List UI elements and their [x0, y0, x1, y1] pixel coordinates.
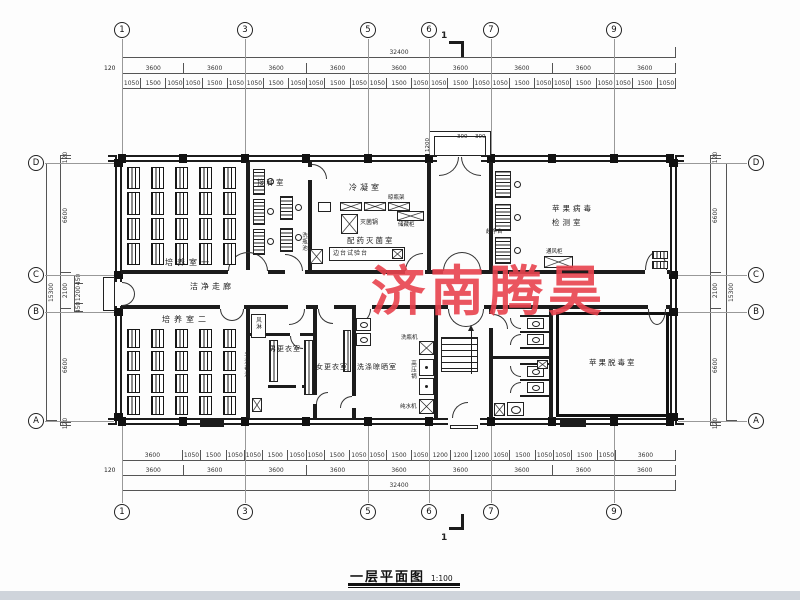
shelf-rack-cell	[175, 218, 188, 240]
wc	[527, 382, 544, 393]
drawing-element: 3600	[514, 468, 529, 474]
dim-row-top-detail: 1050150010501050150010501050150010501050…	[122, 78, 676, 89]
dim-label: 2100	[710, 273, 721, 310]
grid-line	[45, 312, 114, 313]
shelf-rack-cell	[151, 374, 164, 393]
drawing-element	[241, 417, 249, 426]
grid-line	[45, 163, 114, 164]
drawing-element: 1050	[616, 81, 631, 87]
drawing-element: 3600	[391, 66, 406, 72]
equip-label-water-purifier: 纯水机	[400, 404, 417, 410]
dim-label: 450	[74, 304, 83, 312]
grid-line	[614, 39, 615, 154]
drawing-element	[514, 181, 521, 188]
dim-label: 3600	[123, 450, 183, 461]
hand-sanitize-sink	[252, 398, 262, 412]
shelf-rack-cell	[127, 218, 140, 240]
drawing-element	[121, 305, 220, 309]
mop-sink	[537, 360, 548, 369]
dim-label: 120	[710, 423, 721, 426]
wall-right	[670, 155, 677, 425]
dim-label: 1200	[472, 450, 493, 461]
shelf-rack-cell	[223, 351, 236, 370]
door-arc	[285, 254, 303, 271]
grid-bubble-bottom-1: 1	[114, 504, 130, 520]
grid-line	[429, 39, 430, 154]
drawing-element	[520, 395, 549, 397]
drawing-element	[520, 379, 549, 381]
dim-label: 3600	[369, 63, 430, 74]
drawing-element	[360, 322, 368, 328]
drawing-element: 1050	[184, 453, 199, 459]
wc	[527, 334, 544, 345]
drawing-element: 3600	[391, 468, 406, 474]
dim-label: 1500	[203, 78, 228, 89]
drawing-element: 1050	[185, 81, 200, 87]
drawing-element: 1050	[493, 81, 508, 87]
dim-label: 1050	[183, 450, 201, 461]
sink	[356, 318, 371, 331]
dim-label: 3600	[553, 465, 614, 476]
grid-line	[491, 426, 492, 503]
door-arc	[318, 309, 333, 324]
drawing-element: 1200	[453, 453, 468, 459]
dim-label: 1050	[658, 78, 676, 89]
wash-basin	[507, 402, 524, 416]
grid-bubble-left-B: B	[28, 304, 44, 320]
room-label-culture2: 培养室二	[162, 316, 210, 325]
dim-label: 120	[60, 423, 71, 426]
drawing-element: 1050	[413, 453, 428, 459]
drawing-element: 3600	[576, 468, 591, 474]
grid-line	[245, 426, 246, 503]
drawing-element	[364, 417, 372, 426]
dim-label: 3600	[430, 465, 491, 476]
bench	[364, 202, 386, 211]
bench	[340, 202, 362, 211]
drawing-element	[532, 369, 540, 375]
drawing-element: 3600	[453, 66, 468, 72]
shelf-rack	[199, 329, 212, 415]
drawing-element	[267, 238, 274, 245]
shelf-rack-cell	[151, 167, 164, 189]
drawing-element	[514, 214, 521, 221]
drawing-element: 1500	[268, 81, 283, 87]
drawing-element: 1050	[431, 81, 446, 87]
drawing-element: 1050	[308, 81, 323, 87]
equip-label-autoclave: 高压锅	[410, 360, 416, 380]
drawing-element: 1050	[352, 81, 367, 87]
grid-line	[122, 426, 123, 503]
drawing-element: 1050	[351, 453, 366, 459]
drawing-element: 1050	[124, 81, 139, 87]
dim-label: 3600	[616, 450, 676, 461]
shelf-rack-cell	[223, 192, 236, 214]
grid-bubble-top-9: 9	[606, 22, 622, 38]
dim-label: 3600	[430, 63, 491, 74]
dim-label: 3600	[307, 465, 368, 476]
shelf-rack-cell	[199, 192, 212, 214]
equip-label-storage-cabinet: 储藏柜	[398, 222, 415, 228]
drawing-element	[114, 308, 123, 316]
dim-label: 32400	[123, 47, 676, 58]
door-arc	[510, 366, 521, 377]
shelf-rack-cell	[127, 329, 140, 348]
entrance-dim: 300	[457, 134, 468, 140]
grid-line	[491, 39, 492, 154]
dim-label: 1050	[245, 450, 263, 461]
bench	[280, 228, 293, 252]
drawing-scale: 1:100	[431, 574, 453, 583]
drawing-element	[302, 417, 310, 426]
dim-label: 1500	[325, 450, 351, 461]
dim-label: 1200	[430, 450, 451, 461]
drawing-element	[532, 385, 540, 391]
dim-label: 1050	[228, 78, 246, 89]
door-arc	[220, 309, 232, 321]
dim-label: 1500	[510, 450, 536, 461]
drawing-element: 3600	[207, 468, 222, 474]
shelf-rack-cell	[175, 167, 188, 189]
dim-label: 1050	[553, 78, 571, 89]
drawing-element: 3600	[207, 66, 222, 72]
dim-label: 15300	[726, 164, 737, 421]
dim-label: 1050	[412, 450, 430, 461]
drawing-element: 1050	[369, 453, 384, 459]
dim-col-left-sub: 4501200450	[74, 275, 83, 312]
drawing-element: 1500	[329, 453, 344, 459]
drawing-element: 1500	[330, 81, 345, 87]
drawing-element: 3600	[514, 66, 529, 72]
room-label-condensation: 冷凝室	[349, 184, 382, 193]
drawing-element	[179, 154, 187, 163]
drawing-element: 1050	[167, 81, 182, 87]
drawing-element	[511, 406, 521, 414]
drawing-element: 2100	[63, 283, 70, 298]
equip-label-hand-sanitize: 手消毒池	[243, 352, 249, 378]
dim-label: 3600	[307, 63, 368, 74]
grid-bubble-bottom-6: 6	[421, 504, 437, 520]
shelf-rack-cell	[175, 192, 188, 214]
drawing-element	[179, 417, 187, 426]
shelf-rack-cell	[199, 374, 212, 393]
drawing-element: 15300	[729, 282, 736, 301]
drawing-element: 3600	[637, 468, 652, 474]
shelf-rack-cell	[223, 396, 236, 415]
drawing-element: 1050	[537, 453, 552, 459]
drawing-element: 1500	[637, 81, 652, 87]
dim-label: 1050	[289, 78, 307, 89]
dim-label: 1500	[387, 450, 413, 461]
drawing-element: 1500	[391, 453, 406, 459]
dim-label: 1050	[430, 78, 448, 89]
dim-col-right-chain: 120660021006600120	[710, 155, 721, 426]
dim-label: 3600	[123, 63, 184, 74]
door-arc	[232, 309, 244, 321]
drawing-element: 3600	[146, 66, 161, 72]
drawing-element: 3600	[145, 453, 160, 459]
door-arc	[312, 164, 327, 179]
drawing-element: 1500	[453, 81, 468, 87]
section-marker-label-top: 1	[441, 32, 447, 42]
dim-label: 3600	[615, 465, 676, 476]
air-shower-label: 风淋	[255, 317, 261, 330]
drawing-element: 1050	[289, 453, 304, 459]
air-shower: 风淋	[251, 314, 266, 338]
drawing-element	[268, 385, 296, 388]
shelf-rack	[127, 167, 140, 265]
dim-label: 15300	[46, 164, 57, 421]
dim-offset-bottom: 120	[104, 468, 115, 475]
drawing-element: 1050	[229, 81, 244, 87]
page-edge-strip	[0, 591, 800, 600]
shelf-rack-cell	[127, 243, 140, 265]
drawing-element: 1050	[228, 453, 243, 459]
equip-label-clean-bench: 超净台	[486, 229, 503, 235]
dim-label: 1050	[227, 450, 245, 461]
grid-line	[245, 39, 246, 154]
shelf-rack	[175, 167, 188, 265]
shelf-rack-cell	[175, 351, 188, 370]
dim-label: 1050	[246, 78, 264, 89]
drawing-element	[352, 408, 356, 418]
dim-label: 1500	[571, 78, 596, 89]
room-label-men-changing: 男更衣室	[269, 346, 301, 354]
wall-bottom	[108, 418, 448, 425]
autoclave	[419, 378, 434, 395]
grid-line	[429, 426, 430, 503]
drawing-element: 1050	[597, 81, 612, 87]
shelf-rack	[175, 329, 188, 415]
dim-label: 1200	[451, 450, 472, 461]
dim-label: 3600	[492, 63, 553, 74]
dim-label: 1050	[123, 78, 141, 89]
wall-left	[115, 306, 122, 425]
grid-bubble-top-3: 3	[237, 22, 253, 38]
shelf-rack-cell	[151, 192, 164, 214]
drawing-element: 1050	[475, 81, 490, 87]
drawing-element	[520, 347, 549, 349]
drawing-element	[200, 419, 224, 427]
dim-label: 1050	[369, 450, 387, 461]
watermark-text: 济南腾昊	[371, 247, 607, 326]
dim-label: 1050	[492, 450, 510, 461]
grid-bubble-bottom-7: 7	[483, 504, 499, 520]
grid-bubble-top-5: 5	[360, 22, 376, 38]
grid-bubble-left-C: C	[28, 267, 44, 283]
wall-left	[115, 155, 122, 282]
drawing-element: 1050	[555, 453, 570, 459]
door-arc	[340, 396, 352, 408]
drawing-element	[425, 417, 433, 426]
dim-label: 1050	[536, 450, 554, 461]
dim-label: 32400	[123, 480, 676, 491]
grid-bubble-top-1: 1	[114, 22, 130, 38]
room-label-washing: 洗涤晾晒室	[357, 364, 397, 372]
dim-label: 1050	[307, 78, 325, 89]
shelf-rack-cell	[127, 374, 140, 393]
shelf-rack-cell	[223, 218, 236, 240]
grid-bubble-bottom-5: 5	[360, 504, 376, 520]
room-label-virus-test: 苹果病毒	[552, 205, 594, 213]
dim-label: 3600	[369, 465, 430, 476]
drawing-element: 1050	[413, 81, 428, 87]
drawing-element: 1050	[554, 81, 569, 87]
drawing-element	[669, 413, 678, 421]
drawing-element	[268, 270, 285, 274]
drawing-element: 120	[713, 418, 720, 429]
dim-label: 3600	[553, 63, 614, 74]
drawing-element: 1050	[493, 453, 508, 459]
dim-label: 3600	[246, 63, 307, 74]
dim-label: 1050	[288, 450, 306, 461]
drawing-element	[669, 159, 678, 167]
wall-top	[481, 155, 684, 162]
drawing-element: 3600	[453, 468, 468, 474]
door-arc-entrance	[439, 157, 459, 176]
storage-cabinet	[397, 211, 424, 221]
drawing-element: 120	[63, 151, 70, 162]
door-arc-entrance	[461, 157, 481, 176]
dim-label: 1500	[264, 78, 289, 89]
side-entry-step	[103, 277, 115, 311]
drawing-element: 1050	[370, 81, 385, 87]
dim-label: 1500	[448, 78, 473, 89]
shelf-rack-cell	[175, 374, 188, 393]
drawing-element: 1500	[206, 453, 221, 459]
section-marker-bottom	[449, 527, 464, 530]
drawing-element: 1050	[247, 81, 262, 87]
drawing-element	[318, 202, 331, 212]
shelf-rack	[223, 167, 236, 265]
drawing-element: 6600	[713, 208, 720, 223]
shelf-rack-cell	[151, 396, 164, 415]
shelf-rack-cell	[223, 243, 236, 265]
door-arc	[452, 402, 468, 418]
drawing-element: 1050	[536, 81, 551, 87]
grid-line	[678, 275, 747, 276]
equip-label-bottle-washer: 洗瓶机	[401, 335, 418, 341]
grid-line	[678, 163, 747, 164]
drawing-element: 120	[713, 151, 720, 162]
bench	[253, 229, 265, 255]
shelf-rack-cell	[151, 351, 164, 370]
grid-line	[678, 421, 747, 422]
drawing-element	[114, 413, 123, 421]
grid-bubble-right-A: A	[748, 413, 764, 429]
dim-row-top-overall: 32400	[122, 47, 676, 58]
room-label-detox: 苹果脱毒室	[589, 359, 637, 367]
drawing-element	[548, 154, 556, 163]
dim-label: 1050	[351, 78, 369, 89]
dim-row-bottom-bays: 360036003600360036003600360036003600	[122, 465, 676, 476]
shelf-rack-cell	[199, 396, 212, 415]
drawing-element: 1500	[146, 81, 161, 87]
drawing-element: 1050	[599, 453, 614, 459]
drawing-element: 3600	[146, 468, 161, 474]
grid-bubble-bottom-3: 3	[237, 504, 253, 520]
shelf-rack-cell	[223, 374, 236, 393]
section-marker-top	[461, 41, 464, 57]
clean-bench	[495, 204, 511, 231]
drawing-element: 1200	[76, 286, 83, 301]
dim-label: 3600	[184, 63, 245, 74]
drawing-element: 3600	[268, 66, 283, 72]
drawing-element	[652, 261, 668, 269]
grid-line	[122, 39, 123, 154]
room-label-virus-test: 检测室	[552, 219, 584, 227]
shelf-rack	[151, 167, 164, 265]
shelf-rack-cell	[151, 243, 164, 265]
grid-bubble-top-7: 7	[483, 22, 499, 38]
door-arc	[510, 382, 521, 393]
dim-label: 1500	[263, 450, 289, 461]
grid-line	[368, 39, 369, 154]
bench	[253, 199, 265, 225]
drawing-element	[364, 154, 372, 163]
dim-label: 1500	[141, 78, 166, 89]
drawing-element	[295, 204, 302, 211]
drawing-element: 1500	[515, 453, 530, 459]
clean-bench	[495, 171, 511, 198]
shelf-rack	[199, 167, 212, 265]
equip-label-bottle-rack: 晾瓶架	[388, 195, 405, 201]
drawing-element	[267, 208, 274, 215]
equip-label-side-bench: 边台试验台	[333, 251, 368, 258]
shelf-rack-cell	[127, 167, 140, 189]
drawing-element	[652, 251, 668, 259]
door-arc	[122, 282, 135, 294]
drawing-element	[489, 328, 493, 418]
dim-label: 1050	[474, 78, 492, 89]
grid-bubble-bottom-9: 9	[606, 504, 622, 520]
drawing-element: 1050	[290, 81, 305, 87]
entry-step	[450, 425, 478, 429]
drawing-element	[532, 337, 540, 343]
dim-label: 1050	[412, 78, 430, 89]
autoclave	[419, 359, 434, 376]
dim-label: 1050	[166, 78, 184, 89]
shelf-rack-cell	[151, 218, 164, 240]
dim-label: 1500	[201, 450, 227, 461]
shelf-rack-cell	[127, 351, 140, 370]
staircase	[441, 337, 478, 372]
wall-top	[108, 155, 437, 162]
locker	[304, 340, 313, 395]
drawing-element: 1500	[268, 453, 283, 459]
drawing-element: 6600	[63, 358, 70, 373]
drawing-element	[520, 331, 549, 333]
title-block: 一层平面图1:100	[350, 566, 453, 585]
grid-line	[614, 426, 615, 503]
bottle-washer	[419, 341, 434, 355]
dim-label: 6600	[710, 159, 721, 273]
door-arc	[289, 309, 305, 325]
dim-label: 1050	[350, 450, 368, 461]
shelf-rack-cell	[151, 329, 164, 348]
dim-row-bottom-overall: 32400	[122, 480, 676, 491]
shelf-rack-cell	[127, 192, 140, 214]
drawing-title: 一层平面图	[350, 570, 425, 585]
shelf-rack-cell	[199, 167, 212, 189]
drawing-element: 3600	[637, 66, 652, 72]
dim-label: 2100	[60, 273, 71, 310]
dim-label: 6600	[710, 309, 721, 423]
drawing-element: 2100	[713, 283, 720, 298]
stair-arrow	[471, 330, 472, 374]
drawing-element: 32400	[389, 483, 408, 489]
drawing-element	[667, 270, 671, 274]
